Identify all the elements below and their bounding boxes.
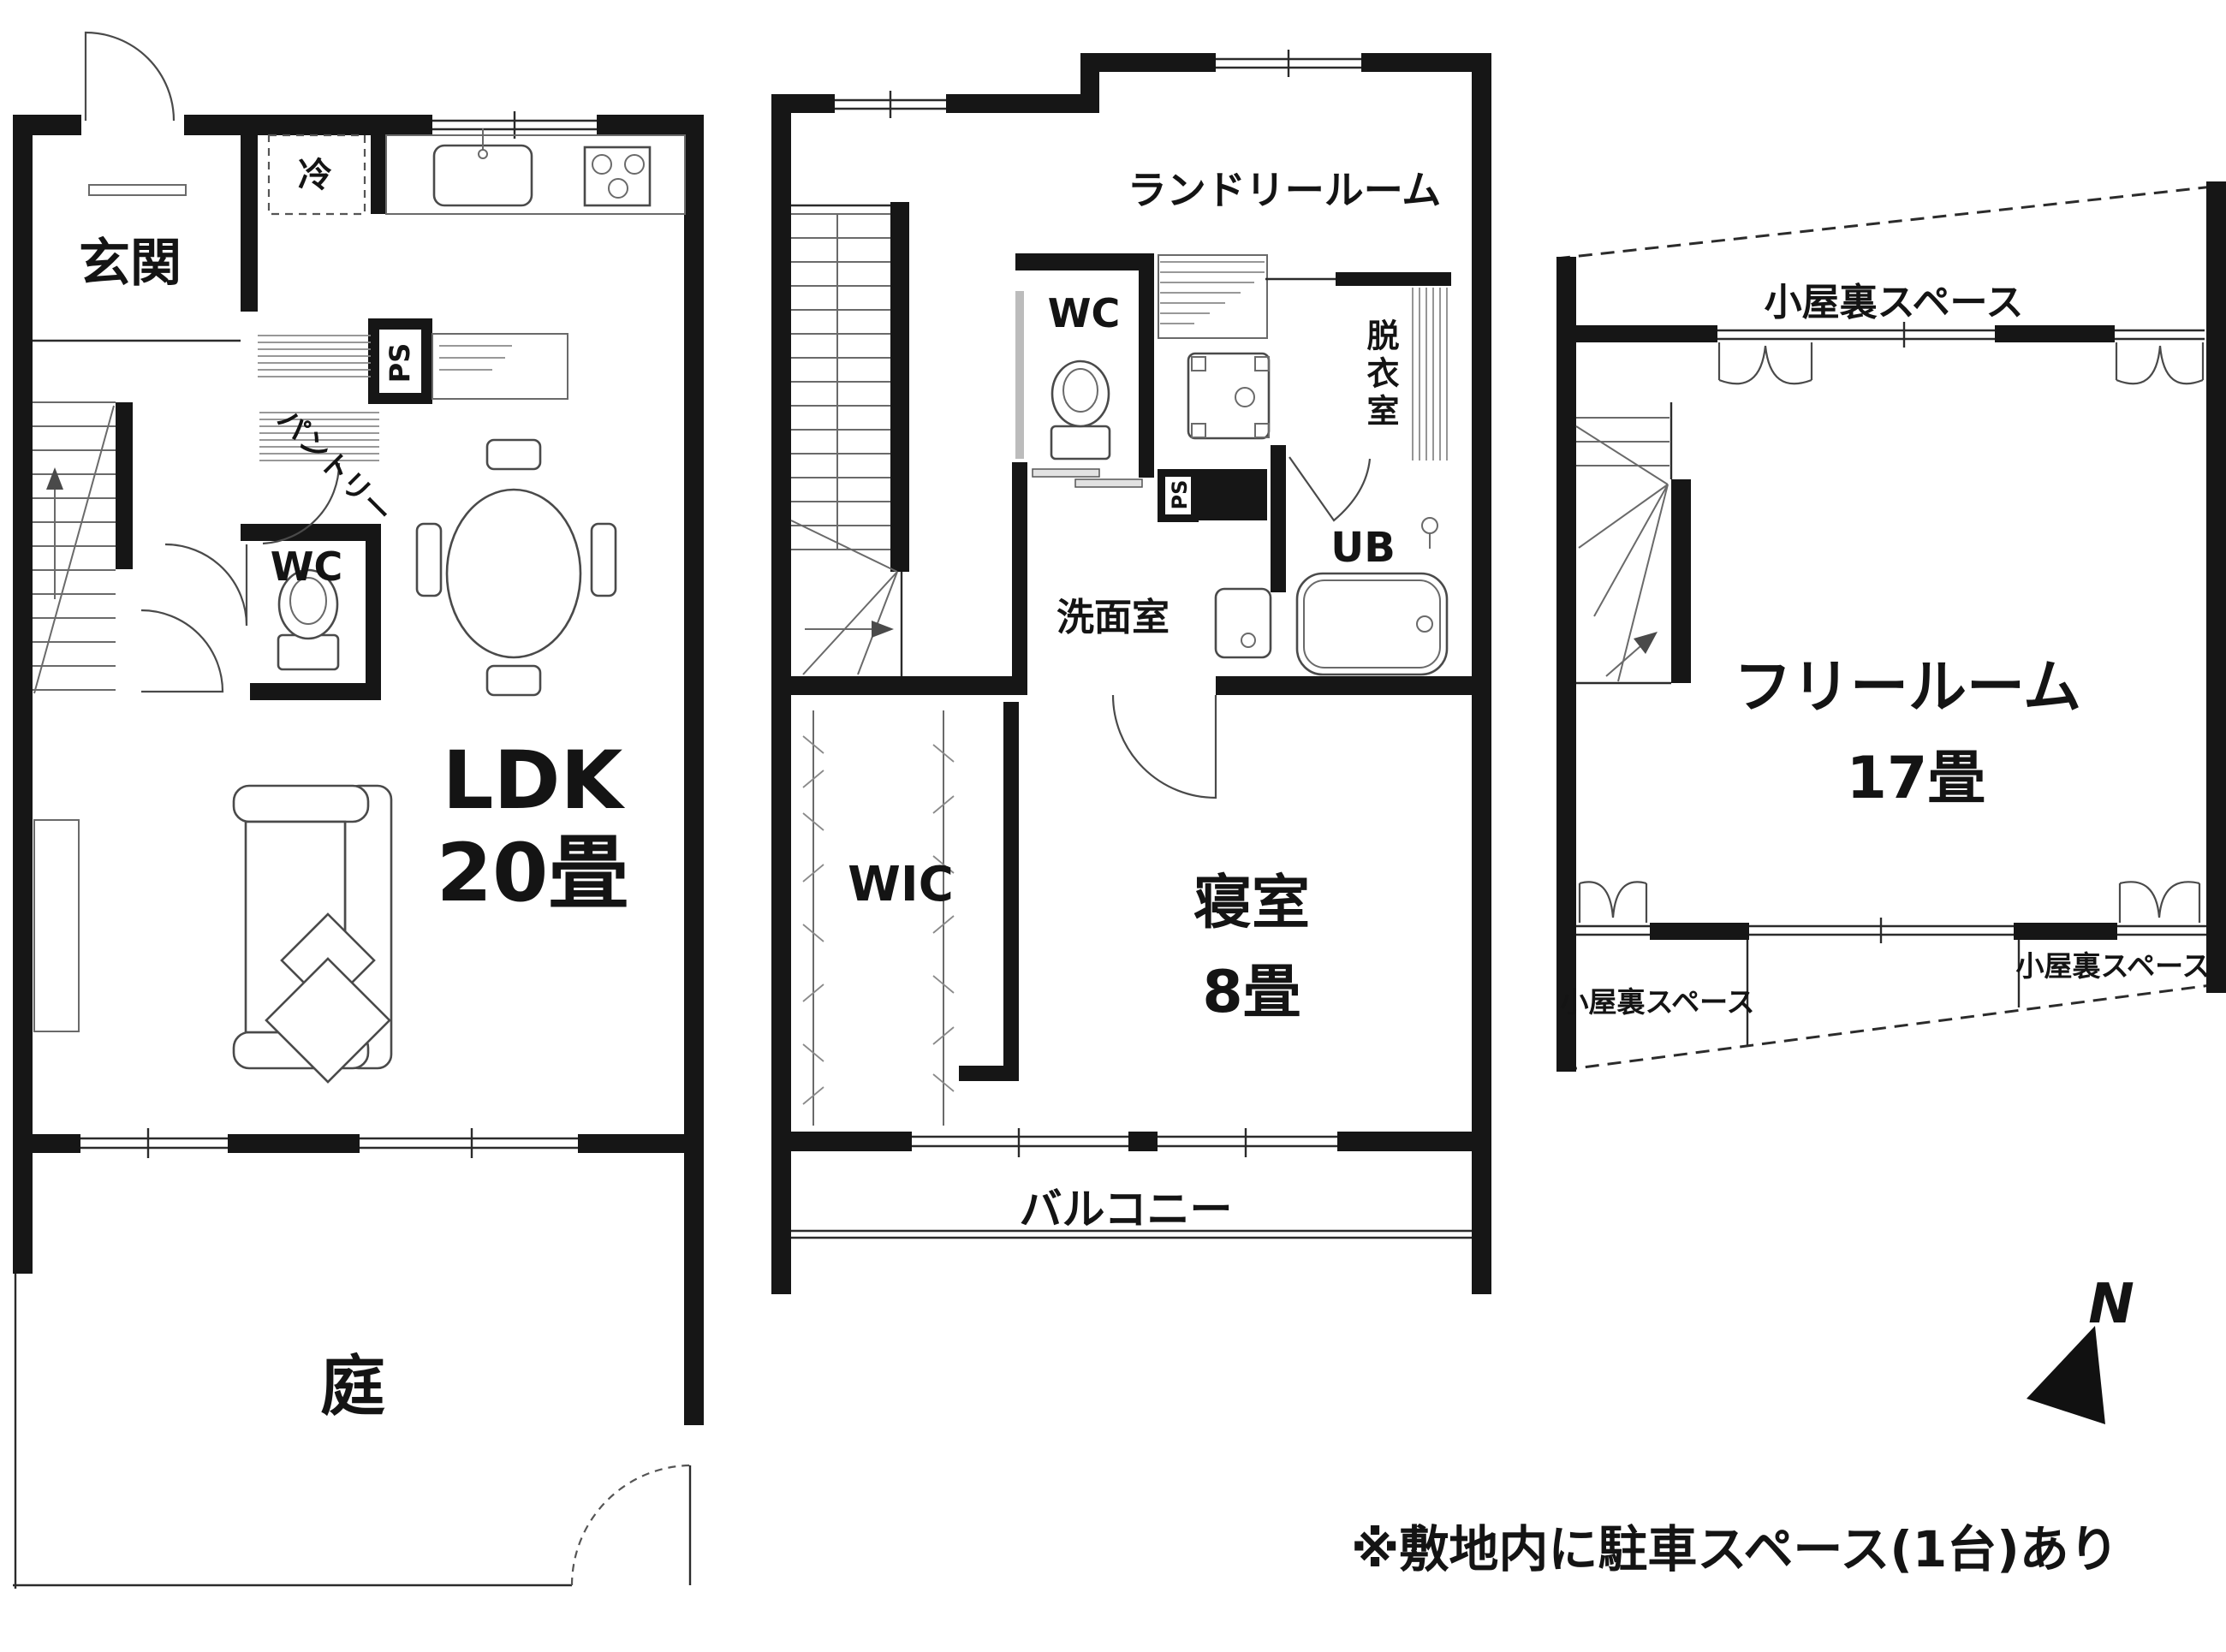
hall-door [141, 610, 223, 692]
attic-bottom-right-label: 小屋裏スペース [2015, 949, 2210, 983]
north-label: N [2088, 1273, 2134, 1336]
stairs-1f [33, 402, 116, 693]
closet-doors-bottom [1580, 882, 2199, 923]
step-storage [1158, 255, 1267, 338]
parking-note: ※敷地内に駐車スペース(1台)あり [1351, 1520, 2119, 1578]
attic-top-label: 小屋裏スペース [1765, 281, 2024, 324]
wc2-label: WC [1048, 290, 1121, 336]
floor-plan-drawing: 玄関 冷 PS パントリー WC LDK 20畳 庭 [0, 0, 2226, 1652]
wic-label: WIC [848, 857, 954, 912]
attic-bottom-left-label: 小屋裏スペース [1560, 985, 1754, 1019]
bathtub [1297, 573, 1447, 674]
dining-table [417, 440, 616, 695]
wc2-sliding-door-leaf [1075, 479, 1142, 487]
ldk-label: LDK [443, 734, 626, 828]
free-room-label: フリールーム [1734, 654, 2081, 722]
stairs-3f [1576, 402, 1671, 683]
dressing-room [1188, 279, 1447, 461]
floor1-plan: 玄関 冷 PS パントリー WC LDK 20畳 庭 [13, 33, 704, 1589]
north-arrow-icon [2027, 1326, 2105, 1424]
shower-icon [1422, 518, 1437, 533]
wc1-label: WC [271, 544, 343, 590]
washroom-label: 洗面室 [1056, 596, 1170, 639]
dressing-room-label: 脱衣室 [1361, 318, 1399, 431]
ps2-label: PS [1168, 480, 1192, 510]
closet-doors-top [1719, 342, 2203, 383]
floor3-plan: 小屋裏スペース フリールーム 17畳 小屋裏スペース 小屋裏スペース [1556, 181, 2226, 1072]
bedroom-label: 寝室 [1193, 870, 1310, 937]
tv-board [34, 820, 79, 1031]
bedroom-size-label: 8畳 [1202, 959, 1300, 1026]
floor2-plan: ランドリールーム WC 脱衣室 PS UB 洗面室 WIC 寝室 8畳 バルコニ… [771, 50, 1491, 1294]
washbasin [1216, 589, 1271, 657]
entrance-door [86, 33, 186, 195]
wic-hangers [803, 710, 954, 1126]
genkan-label: 玄関 [79, 234, 182, 294]
fridge-label: 冷 [298, 156, 332, 195]
wc1-door [165, 544, 247, 626]
floor-plan-page: 玄関 冷 PS パントリー WC LDK 20畳 庭 [0, 0, 2226, 1652]
kitchen-counter [386, 128, 685, 214]
roof-slope-top [1556, 187, 2213, 258]
ldk-size-label: 20畳 [437, 827, 629, 920]
island-counter [432, 334, 568, 399]
balcony-label: バルコニー [1020, 1185, 1233, 1234]
wc2-sliding-door [1033, 469, 1099, 477]
toilet-2f [1051, 361, 1110, 459]
bath-bifold-door [1289, 457, 1370, 520]
bedroom-door [1113, 695, 1216, 798]
wc2-pocket-door [1015, 291, 1024, 459]
sofa [234, 786, 391, 1082]
garden-boundary [13, 1274, 692, 1589]
pantry-label: パントリー [271, 402, 399, 531]
laundry-label: ランドリールーム [1128, 167, 1442, 213]
ub-label: UB [1330, 524, 1396, 572]
garden-label: 庭 [320, 1348, 385, 1424]
ps1-label: PS [384, 343, 416, 383]
free-room-size-label: 17畳 [1847, 745, 1986, 812]
stairs-2f [791, 205, 902, 676]
north-compass: N [2027, 1273, 2134, 1424]
washing-machine [1188, 354, 1269, 438]
